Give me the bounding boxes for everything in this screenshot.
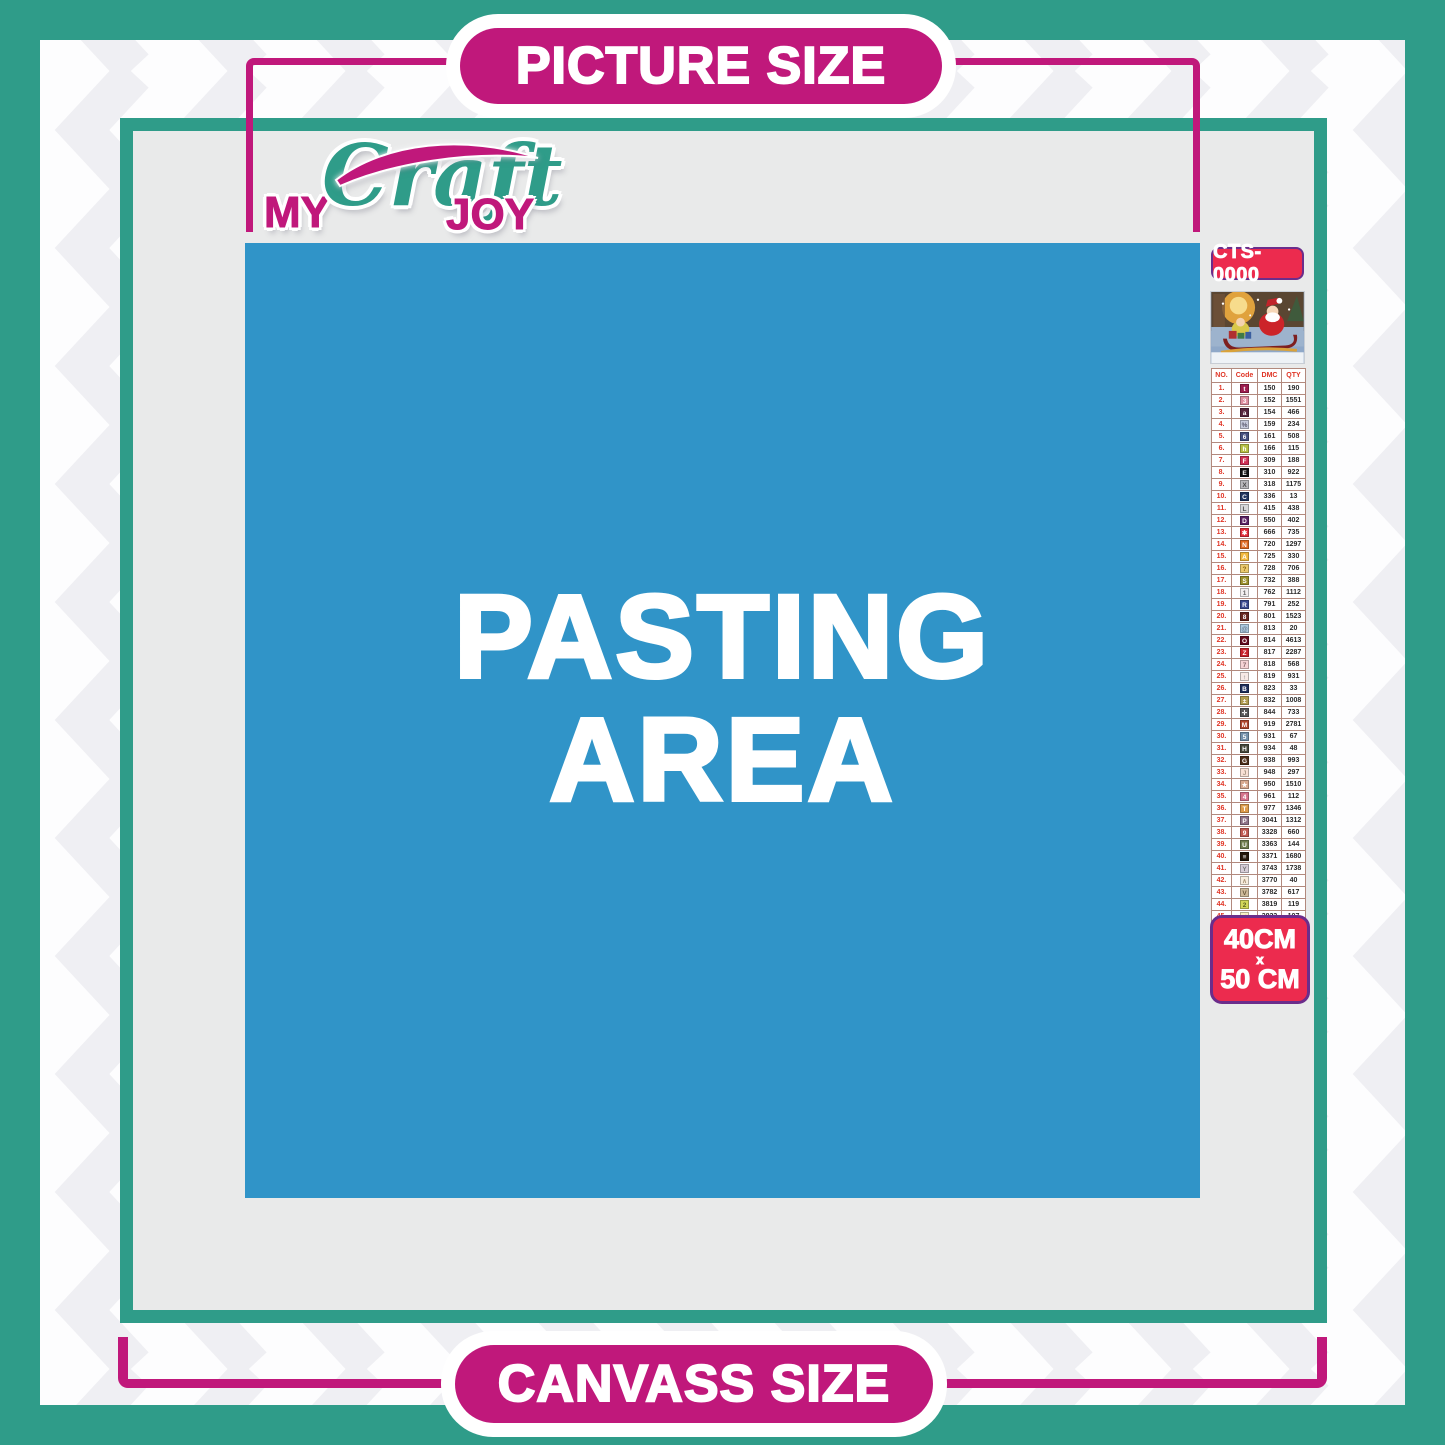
color-swatch: E [1240,468,1249,477]
legend-row: 35.4961112 [1212,791,1306,803]
legend-row: 8.E310922 [1212,467,1306,479]
legend-row: 4.%159234 [1212,419,1306,431]
pasting-area: PASTING AREA [245,243,1200,1198]
product-code-badge: CTS-0000 [1211,247,1304,280]
color-swatch: X [1240,480,1249,489]
color-swatch: P [1240,816,1249,825]
legend-row: 2.31521551 [1212,395,1306,407]
brush-swash-icon [330,134,545,190]
legend-row: 15.A725330 [1212,551,1306,563]
color-swatch: ± [1240,696,1249,705]
legend-header-row: NO. Code DMC QTY [1212,369,1306,383]
color-swatch: O [1240,636,1249,645]
color-swatch: 9 [1240,828,1249,837]
color-swatch: 4 [1240,792,1249,801]
legend-row: 22.O8144613 [1212,635,1306,647]
legend-row: 13.✱666735 [1212,527,1306,539]
color-swatch: ↑ [1240,672,1249,681]
legend-row: 12.D550402 [1212,515,1306,527]
pasting-area-label: PASTING AREA [454,576,991,821]
legend-row: 33.J948297 [1212,767,1306,779]
legend-row: 18.17621112 [1212,587,1306,599]
legend-row: 41.Y37431738 [1212,863,1306,875]
canvass-size-label: CANVASS SIZE [498,1354,890,1414]
color-swatch: 5 [1240,732,1249,741]
brand-logo: MY Craft JOY [260,142,550,250]
legend-row: 14.N7201297 [1212,539,1306,551]
color-swatch: Z [1240,648,1249,657]
legend-row: 25.↑819931 [1212,671,1306,683]
design-preview-image [1210,291,1305,364]
legend-row: 21.@81320 [1212,623,1306,635]
picture-size-banner: PICTURE SIZE [446,14,956,118]
legend-row: 32.G938993 [1212,755,1306,767]
legend-row: 28.✛844733 [1212,707,1306,719]
canvas-width-label: 40CM [1224,926,1296,953]
color-swatch: @ [1240,624,1249,633]
color-swatch: h [1240,444,1249,453]
color-swatch: A [1240,552,1249,561]
legend-row: 29.M9192781 [1212,719,1306,731]
color-legend-table: NO. Code DMC QTY 1.t1501902.315215513.a1… [1211,368,1306,959]
color-swatch: ✱ [1240,528,1249,537]
logo-word-joy: JOY [446,190,534,240]
legend-header-dmc: DMC [1258,369,1282,383]
color-swatch: 2 [1240,900,1249,909]
color-swatch: 7 [1240,660,1249,669]
legend-row: 6.h166115 [1212,443,1306,455]
legend-row: 40.≡33711680 [1212,851,1306,863]
color-swatch: F [1240,456,1249,465]
legend-row: 16.?728706 [1212,563,1306,575]
color-swatch: G [1240,756,1249,765]
color-swatch: L [1240,504,1249,513]
color-swatch: H [1240,744,1249,753]
legend-row: 7.F309188 [1212,455,1306,467]
product-code-label: CTS-0000 [1213,241,1302,287]
legend-row: 30.593167 [1212,731,1306,743]
legend-row: 9.X3181175 [1212,479,1306,491]
legend-row: 23.Z8172287 [1212,647,1306,659]
color-swatch: ∧ [1240,876,1249,885]
color-swatch: t [1240,384,1249,393]
legend-header-no: NO. [1212,369,1232,383]
color-swatch: ★ [1240,780,1249,789]
legend-header-code: Code [1232,369,1258,383]
legend-row: 31.H93448 [1212,743,1306,755]
color-swatch: Y [1240,864,1249,873]
legend-row: 37.P30411312 [1212,815,1306,827]
color-swatch: D [1240,516,1249,525]
legend-row: 11.L415438 [1212,503,1306,515]
legend-row: 3.a154466 [1212,407,1306,419]
legend-row: 36.T9771346 [1212,803,1306,815]
color-swatch: J [1240,768,1249,777]
diamond-painting-size-guide-poster: PASTING AREA MY Craft JOY PICTURE SIZE C… [0,0,1445,1445]
pasting-area-line1: PASTING [454,576,991,699]
canvas-dimensions-badge: 40CM x 50 CM [1210,915,1310,1004]
legend-row: 5.6161508 [1212,431,1306,443]
color-swatch: N [1240,540,1249,549]
legend-row: 17.S732388 [1212,575,1306,587]
color-swatch: 6 [1240,432,1249,441]
canvass-size-banner: CANVASS SIZE [441,1331,947,1437]
legend-row: 27.±8321008 [1212,695,1306,707]
color-swatch: a [1240,408,1249,417]
color-swatch: S [1240,576,1249,585]
color-swatch: B [1240,684,1249,693]
color-swatch: 1 [1240,588,1249,597]
color-swatch: T [1240,804,1249,813]
legend-header-qty: QTY [1282,369,1306,383]
color-swatch: 3 [1240,396,1249,405]
color-swatch: ≡ [1240,852,1249,861]
canvas-height-label: 50 CM [1220,966,1300,993]
picture-size-label: PICTURE SIZE [516,36,886,96]
legend-row: 34.★9501510 [1212,779,1306,791]
santa-sleigh-illustration [1211,292,1304,363]
legend-row: 38.93328660 [1212,827,1306,839]
color-swatch: M [1240,720,1249,729]
legend-row: 39.U3363144 [1212,839,1306,851]
legend-row: 24.7818568 [1212,659,1306,671]
legend-row: 1.t150190 [1212,383,1306,395]
pasting-area-line2: AREA [454,699,991,822]
legend-row: 44.23819119 [1212,899,1306,911]
legend-row: 42.∧377040 [1212,875,1306,887]
legend-row: 43.V3782617 [1212,887,1306,899]
color-swatch: ? [1240,564,1249,573]
color-swatch: V [1240,888,1249,897]
logo-word-my: MY [264,188,330,238]
legend-row: 10.C33613 [1212,491,1306,503]
color-swatch: % [1240,420,1249,429]
color-swatch: U [1240,840,1249,849]
color-swatch: ✛ [1240,708,1249,717]
legend-row: 26.B82333 [1212,683,1306,695]
color-swatch: C [1240,492,1249,501]
canvass-size-pill: CANVASS SIZE [455,1345,933,1423]
picture-size-pill: PICTURE SIZE [460,28,942,104]
legend-row: 19.R791252 [1212,599,1306,611]
color-swatch: 8 [1240,612,1249,621]
color-swatch: R [1240,600,1249,609]
legend-row: 20.88011523 [1212,611,1306,623]
